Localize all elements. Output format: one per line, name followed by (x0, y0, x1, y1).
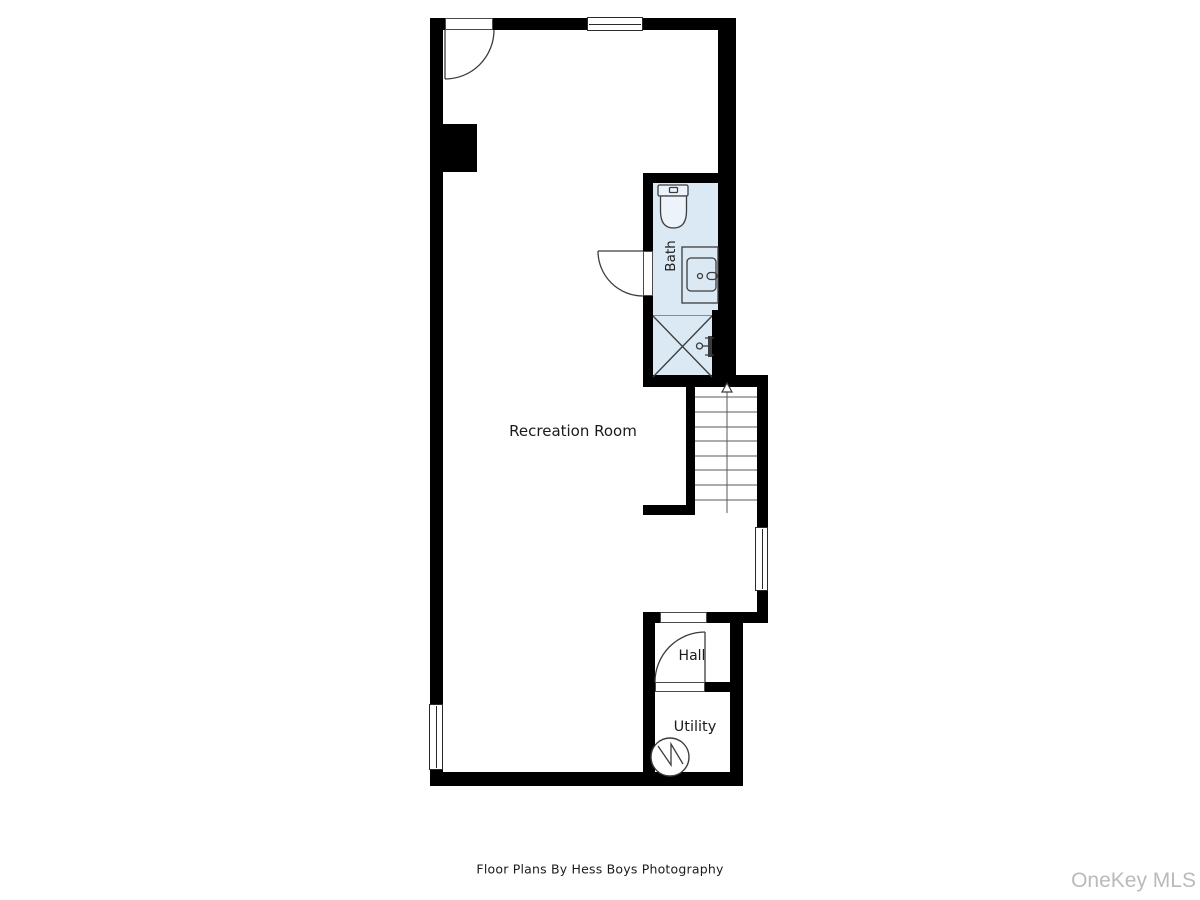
staircase-icon (695, 383, 757, 513)
wall-stairs-stub (643, 505, 695, 515)
wall-right-stairs-upper (757, 383, 768, 528)
wall-bath-top (643, 173, 718, 183)
wall-bath-left-upper (643, 173, 653, 251)
recreation-room-label: Recreation Room (509, 422, 637, 440)
wall-top-mid (493, 18, 588, 30)
bath-label: Bath (663, 240, 679, 271)
wall-stairwell-top (643, 375, 768, 387)
footer-credit: Floor Plans By Hess Boys Photography (476, 862, 723, 877)
hall-label: Hall (679, 648, 706, 664)
wall-hall-utility-divider (705, 682, 730, 692)
wall-bottom (430, 772, 743, 786)
hall-passage-opening (660, 612, 707, 623)
hall-utility-door-opening (655, 682, 705, 692)
bath-door-opening (643, 251, 653, 296)
onekey-mls-watermark: OneKey MLS (1071, 869, 1196, 893)
entry-door-swing-icon (445, 30, 494, 79)
wall-bath-left-lower (643, 296, 653, 386)
floorplan-lineart (0, 0, 1200, 900)
bath-door-swing-icon (598, 251, 643, 296)
wall-stairs-left (686, 386, 695, 515)
wall-right-lower (730, 612, 743, 786)
chimney-block (440, 124, 477, 172)
wall-hall-left (643, 612, 655, 786)
floorplan-image: Recreation Room Bath Hall Utility Floor … (0, 0, 1200, 900)
utility-label: Utility (674, 719, 717, 735)
wall-left (430, 18, 443, 705)
water-heater-icon (651, 738, 689, 776)
window-right (755, 527, 768, 591)
window-left (429, 704, 443, 770)
shower-box-floor (653, 315, 712, 377)
entry-door-opening (445, 18, 493, 30)
window-top (587, 17, 643, 31)
